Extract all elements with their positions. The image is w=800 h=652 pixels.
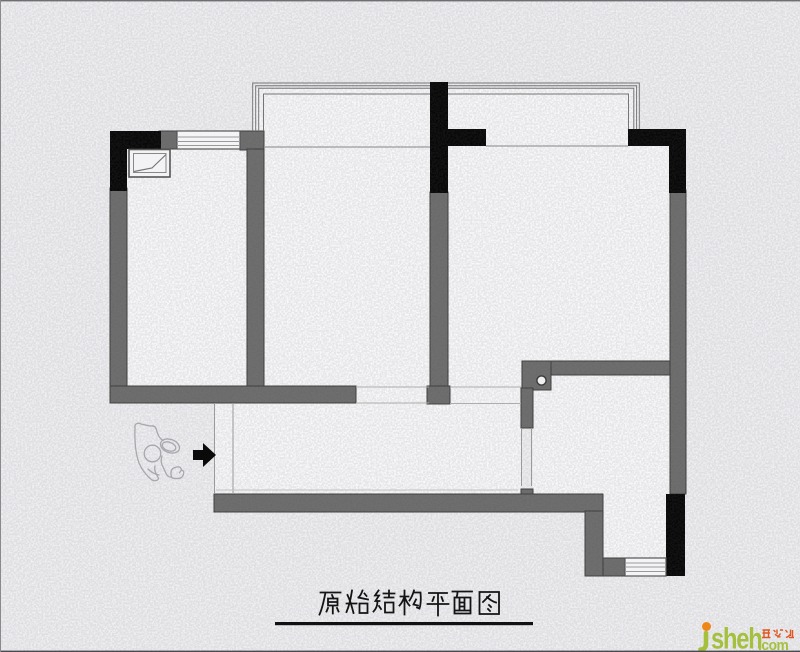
svg-text:sheh: sheh	[711, 622, 762, 652]
svg-text:.com: .com	[758, 638, 788, 652]
